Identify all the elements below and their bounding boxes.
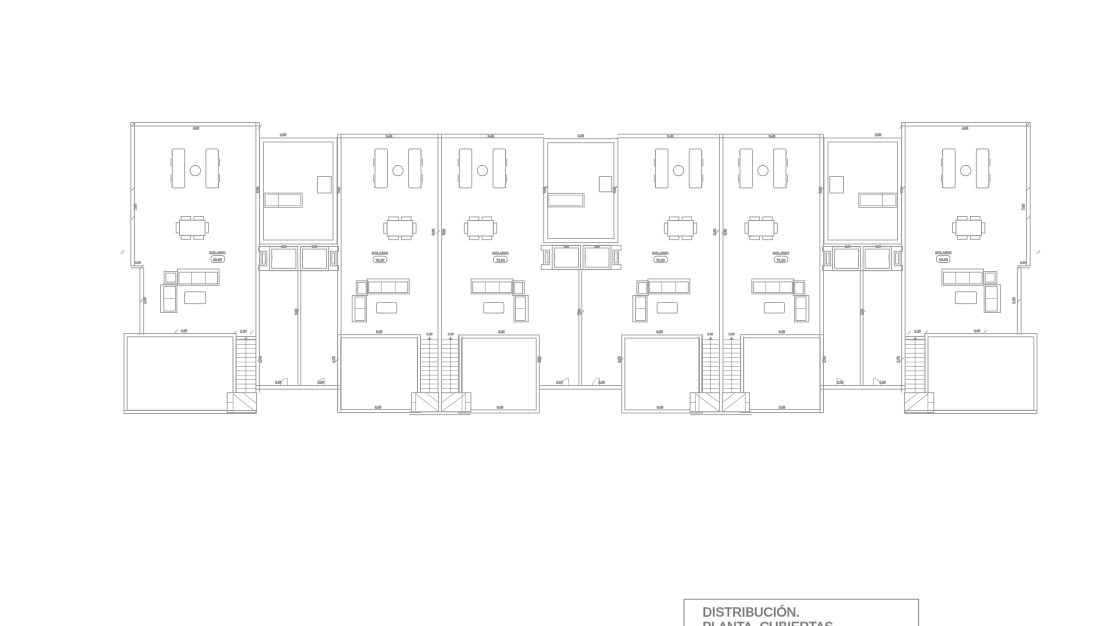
svg-text:71.80: 71.80: [777, 259, 786, 263]
svg-text:2.16: 2.16: [837, 381, 843, 385]
svg-text:3.25: 3.25: [779, 330, 785, 334]
svg-text:4.40: 4.40: [974, 329, 980, 333]
svg-text:1.20: 1.20: [729, 332, 735, 336]
svg-text:SOLARIO: SOLARIO: [372, 251, 389, 255]
svg-text:5.08: 5.08: [819, 187, 823, 193]
svg-text:3.48: 3.48: [667, 134, 673, 138]
svg-text:1.98: 1.98: [281, 245, 287, 249]
svg-text:3.40: 3.40: [497, 406, 503, 410]
svg-text:2.70: 2.70: [823, 356, 827, 362]
svg-text:4.40: 4.40: [181, 329, 187, 333]
svg-text:71.80: 71.80: [376, 259, 385, 263]
svg-text:DISTRIBUCIÓN.: DISTRIBUCIÓN.: [703, 604, 800, 619]
svg-text:2.70: 2.70: [897, 356, 901, 362]
svg-text:7.50: 7.50: [578, 309, 582, 315]
svg-text:2.35: 2.35: [280, 133, 286, 137]
svg-text:2.16: 2.16: [879, 381, 885, 385]
svg-text:SOLARIO: SOLARIO: [492, 251, 509, 255]
svg-text:SOLARIO: SOLARIO: [935, 251, 952, 255]
svg-text:SOLARIO: SOLARIO: [209, 251, 226, 255]
svg-text:3.25: 3.25: [656, 330, 662, 334]
svg-text:2.16: 2.16: [598, 381, 604, 385]
svg-text:5.08: 5.08: [900, 187, 904, 193]
svg-text:PLANTA CUBIERTAS: PLANTA CUBIERTAS: [703, 619, 834, 626]
svg-text:94.05: 94.05: [939, 258, 948, 262]
svg-text:3.40: 3.40: [779, 406, 785, 410]
svg-text:1.20: 1.20: [448, 332, 454, 336]
svg-text:4.98: 4.98: [193, 126, 199, 130]
svg-text:1.98: 1.98: [594, 245, 600, 249]
svg-text:3.48: 3.48: [488, 134, 494, 138]
svg-text:3.25: 3.25: [498, 330, 504, 334]
svg-text:1.20: 1.20: [240, 330, 246, 334]
svg-text:1.20: 1.20: [914, 330, 920, 334]
svg-text:1.98: 1.98: [312, 245, 318, 249]
svg-text:2.35: 2.35: [875, 133, 881, 137]
svg-text:5.08: 5.08: [255, 187, 259, 193]
svg-text:4.98: 4.98: [962, 126, 968, 130]
svg-text:1.98: 1.98: [876, 245, 882, 249]
svg-text:2.16: 2.16: [275, 381, 281, 385]
svg-text:1.98: 1.98: [564, 245, 570, 249]
svg-text:5.08: 5.08: [336, 187, 340, 193]
svg-text:3.40: 3.40: [375, 406, 381, 410]
svg-text:SOLARIO: SOLARIO: [773, 251, 790, 255]
svg-text:3.25: 3.25: [376, 330, 382, 334]
svg-text:86.05: 86.05: [213, 258, 222, 262]
svg-text:1.06: 1.06: [1020, 261, 1026, 265]
svg-text:71.80: 71.80: [656, 259, 665, 263]
svg-text:3.40: 3.40: [657, 406, 663, 410]
svg-text:7.05: 7.05: [133, 204, 137, 210]
svg-text:SOLARIO: SOLARIO: [652, 251, 669, 255]
svg-text:71.80: 71.80: [496, 259, 505, 263]
svg-text:3.48: 3.48: [386, 134, 392, 138]
svg-text:5.38: 5.38: [432, 229, 436, 235]
svg-text:2.35: 2.35: [578, 134, 584, 138]
svg-text:7.05: 7.05: [1022, 204, 1026, 210]
svg-text:2.16: 2.16: [556, 381, 562, 385]
svg-text:2.70: 2.70: [332, 356, 336, 362]
svg-text:1.06: 1.06: [135, 261, 141, 265]
svg-text:1.98: 1.98: [845, 245, 851, 249]
svg-text:5.38: 5.38: [713, 229, 717, 235]
svg-text:1.20: 1.20: [427, 332, 433, 336]
svg-text:2.16: 2.16: [318, 381, 324, 385]
svg-text:5.38: 5.38: [723, 229, 727, 235]
svg-text:2.10: 2.10: [143, 297, 147, 303]
svg-text:1.20: 1.20: [707, 332, 713, 336]
svg-text:2.10: 2.10: [1012, 297, 1016, 303]
svg-text:3.48: 3.48: [769, 134, 775, 138]
